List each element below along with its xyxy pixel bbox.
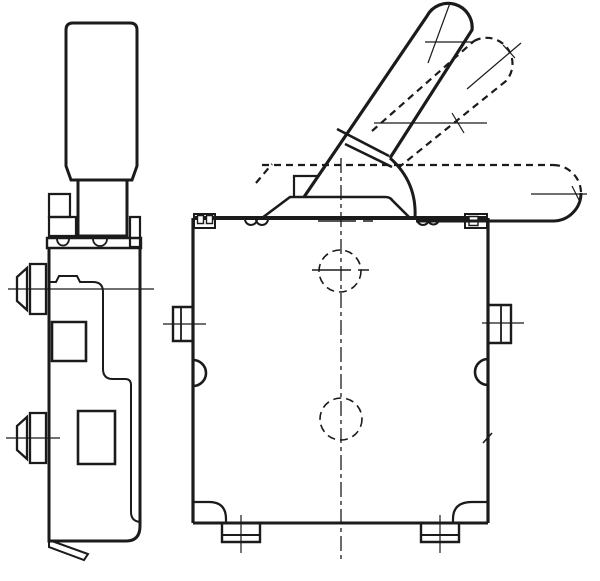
plate-bump-details: [57, 239, 107, 246]
housing: [193, 218, 492, 523]
side-cutout: [52, 322, 86, 361]
mid-lever-centermarks: [467, 43, 521, 89]
bushing: [78, 180, 127, 236]
bushing-dome: [262, 176, 410, 218]
mid-lever-dashed-outline: [372, 38, 513, 168]
side-view: [6, 23, 154, 560]
case-outline: [49, 248, 140, 541]
lever-outline: [304, 3, 472, 197]
bushing-side-tab: [130, 217, 140, 247]
mid-reference-line: [374, 113, 487, 133]
horizontal-lever-centermarks: [531, 186, 587, 202]
foot-left: [193, 502, 226, 523]
mounting-tab-left: [163, 307, 206, 341]
horizontal-lever-dashed: [256, 164, 581, 193]
plate-bump-pair-left: [245, 219, 268, 225]
toggle-lever-up-position: [304, 3, 473, 218]
toggle-switch-drawing: [0, 0, 600, 581]
terminal-pin-left: [222, 515, 260, 553]
drawing-canvas: [0, 0, 600, 581]
centerline-ticks: [312, 221, 373, 270]
terminal-screw-upper: [8, 264, 154, 314]
tab-outline: [488, 305, 511, 343]
terminal-screw-lower: [6, 413, 60, 463]
case-seam: [49, 276, 140, 522]
dome-outline: [262, 197, 410, 218]
lever-collar: [337, 129, 392, 167]
step-block-upper: [49, 194, 70, 217]
foot-right: [453, 502, 488, 523]
snap-dome-right: [475, 359, 488, 385]
lever-handle: [66, 23, 137, 180]
solder-leg: [49, 540, 88, 560]
side-window: [78, 411, 115, 464]
snap-dome-left: [193, 360, 206, 386]
front-view: [163, 3, 587, 562]
step-block-lower: [49, 217, 76, 236]
pivot-hole-upper: [319, 250, 361, 292]
